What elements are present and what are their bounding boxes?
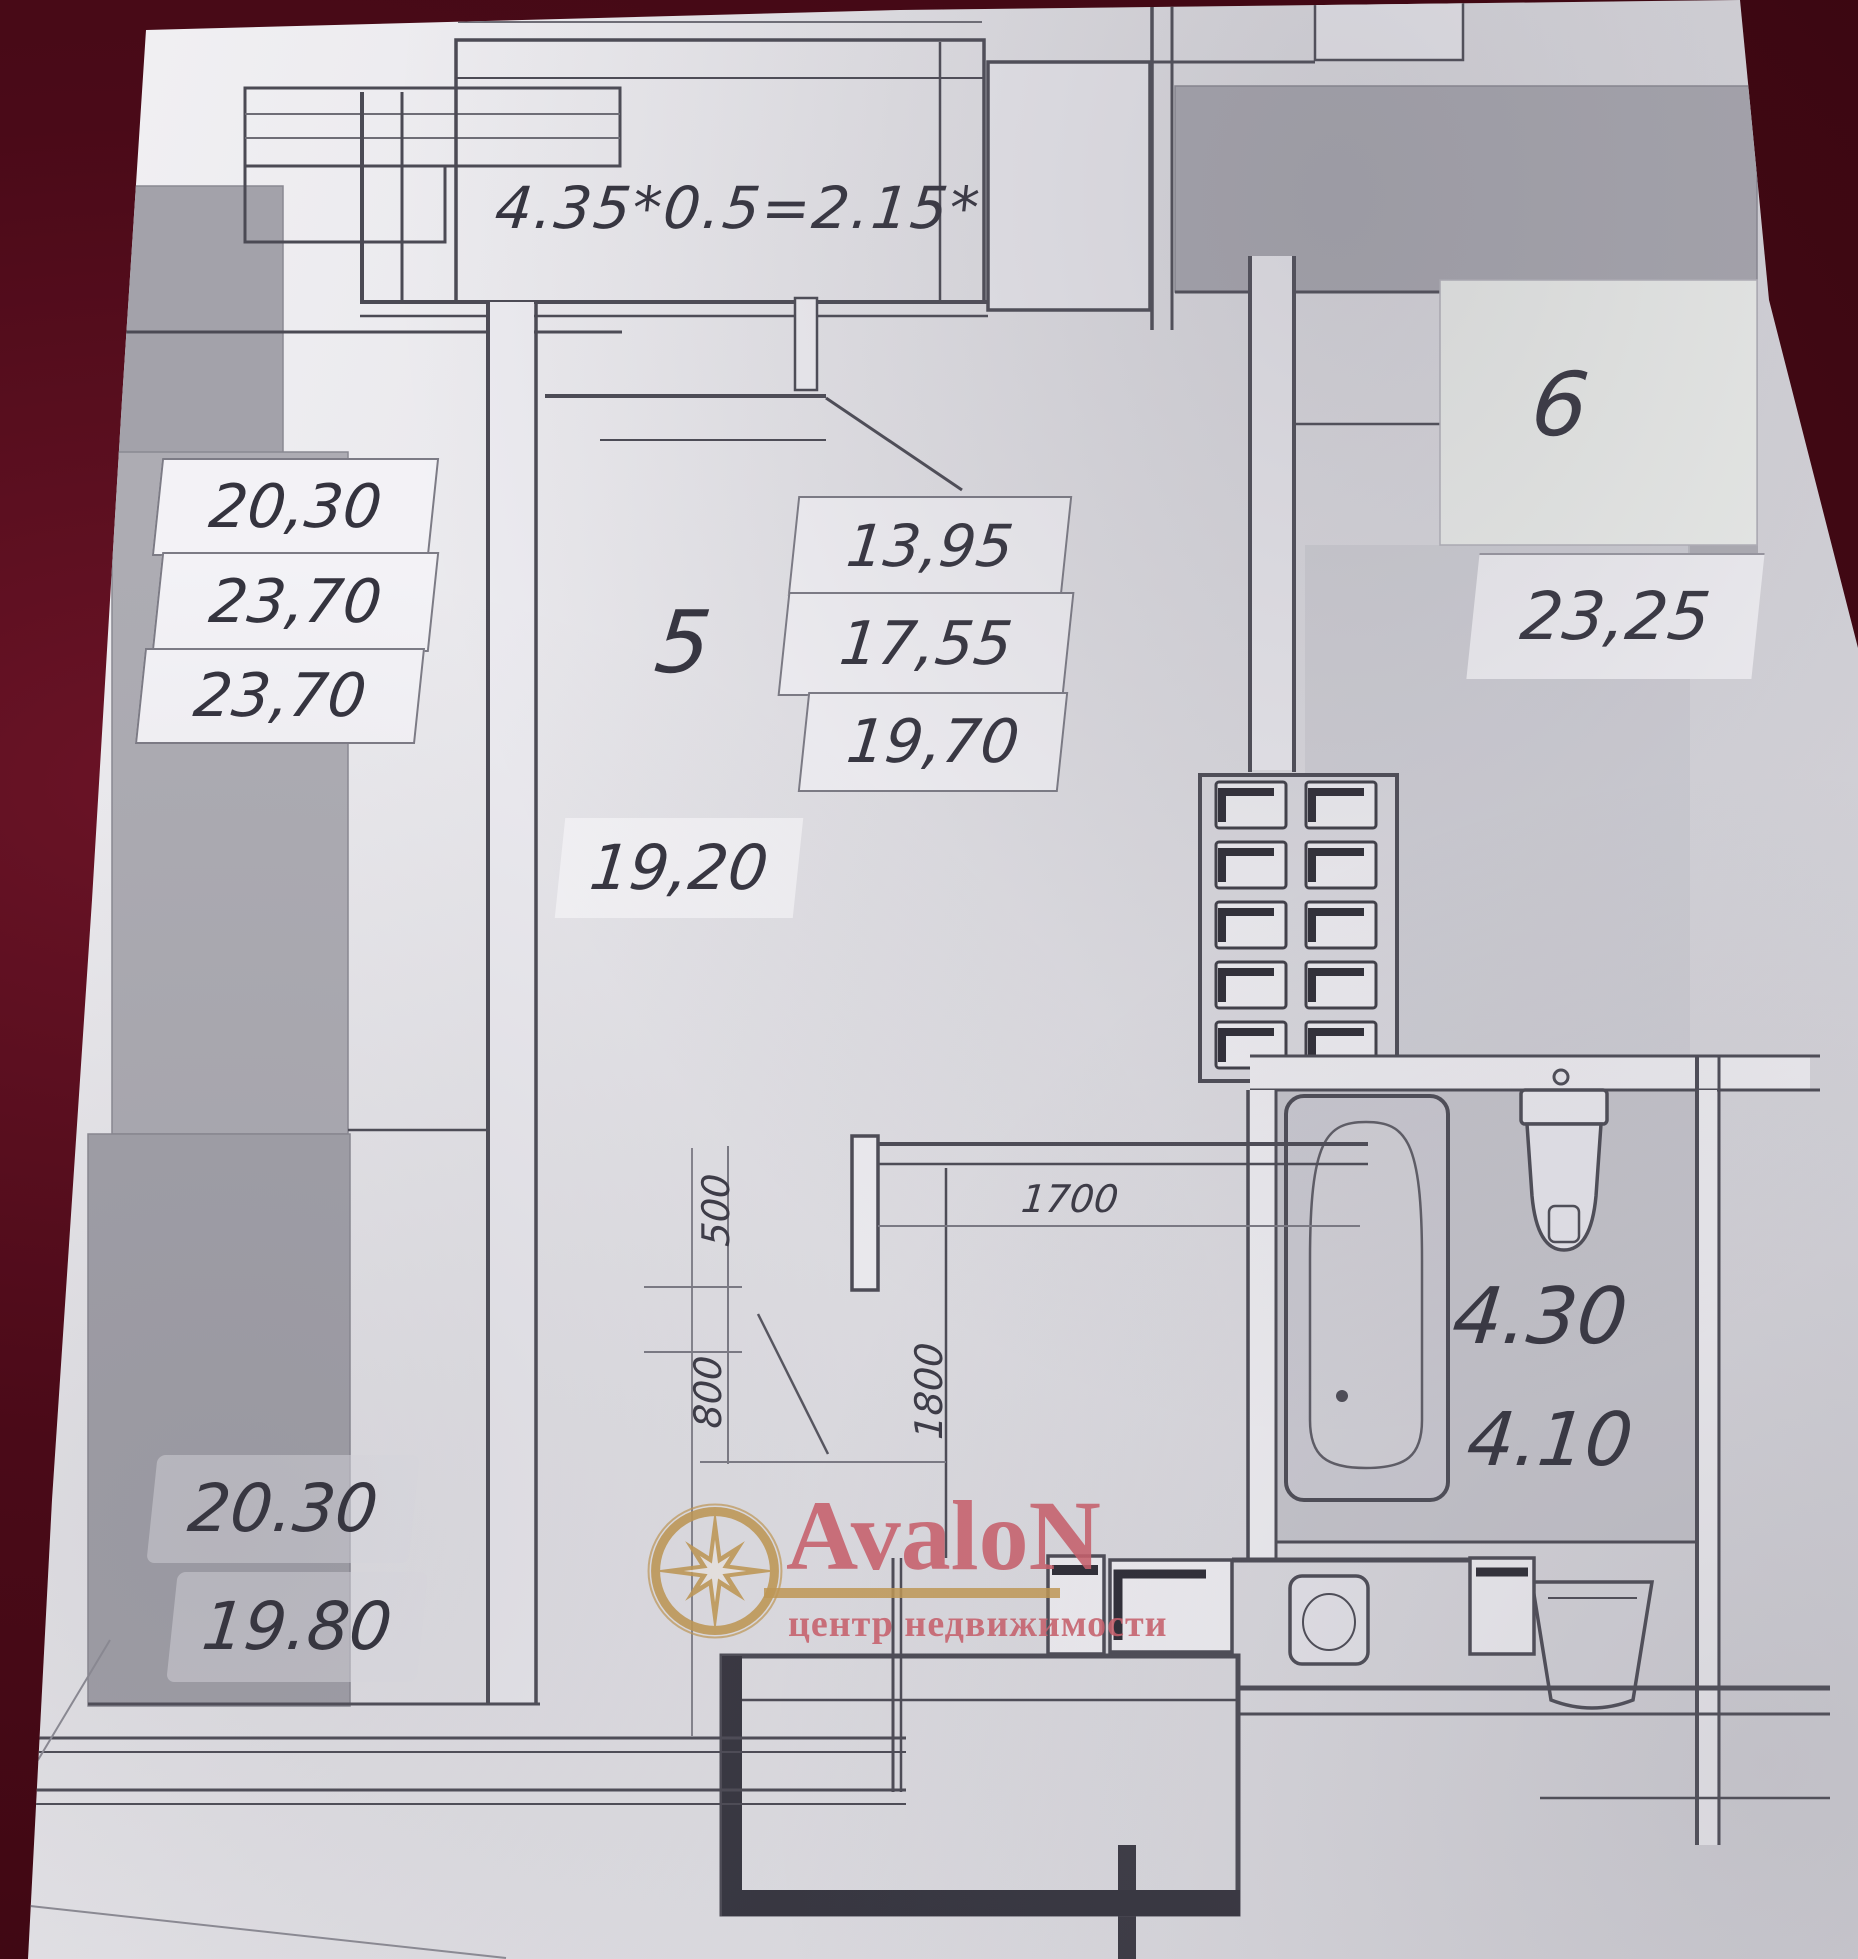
- room5-stacked-area: 17,55: [778, 592, 1075, 696]
- room5-stacked-area: 13,95: [788, 496, 1073, 596]
- door-swing-line: [826, 398, 962, 490]
- bathroom-area-upper: 4.30: [1434, 1258, 1646, 1376]
- bathroom-area-lower: 4.10: [1449, 1385, 1651, 1495]
- watermark-underline: [764, 1588, 1060, 1598]
- ventilation-shaft: [1200, 775, 1397, 1081]
- dimension-500: 500: [694, 1158, 738, 1261]
- dimension-1700: 1700: [1012, 1176, 1129, 1222]
- compass-star-icon: [642, 1498, 788, 1644]
- watermark-brand: AvaloN: [786, 1486, 1101, 1586]
- dimension-1800: 1800: [906, 1327, 952, 1454]
- bottom-left-unit-area: 20.30: [146, 1455, 419, 1563]
- balcony-outline: [360, 22, 988, 490]
- bathtub: [1286, 1096, 1448, 1500]
- left-unit-area-label: 20,30: [152, 458, 439, 556]
- balcony-area-formula: 4.35*0.5=2.15*: [484, 168, 992, 248]
- room5-number: 5: [622, 588, 744, 698]
- loggia-block: [722, 1656, 1238, 1914]
- door-swing-line: [758, 1314, 828, 1454]
- floor-plan-paper: 4.35*0.5=2.15* 20,30 23,70 23,70 5 13,95…: [0, 0, 1858, 1959]
- bathtub-drain: [1336, 1390, 1348, 1402]
- wash-basin: [1290, 1576, 1368, 1664]
- watermark-tagline: центр недвижимости: [788, 1602, 1168, 1646]
- left-unit-area-label: 23,70: [152, 552, 440, 652]
- room6-area: 23,25: [1466, 553, 1764, 679]
- room5-stacked-area: 19,70: [798, 692, 1069, 792]
- photo-of-floor-plan: { "photo": { "background_color": "#4a0a1…: [0, 0, 1858, 1959]
- left-unit-area-label: 23,70: [135, 648, 425, 744]
- bottom-left-unit-area: 19.80: [166, 1572, 428, 1682]
- room5-area: 19,20: [555, 818, 804, 918]
- room6-number: 6: [1494, 345, 1627, 465]
- dimension-800: 800: [686, 1340, 730, 1443]
